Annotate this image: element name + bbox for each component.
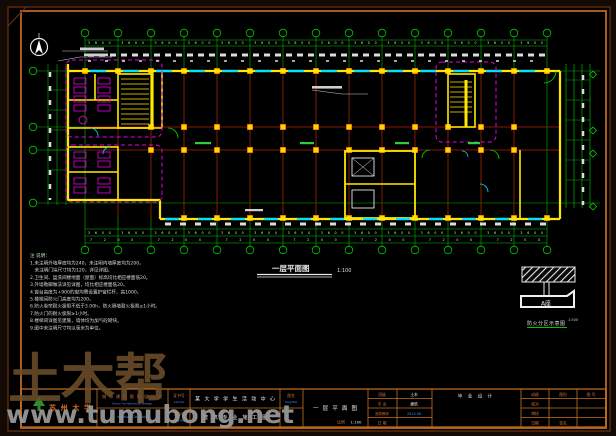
check-label: 校对	[531, 402, 539, 407]
dim-text-bottom1: 3600 3600 3600 3600 3600 3600 3600 3600 …	[88, 231, 543, 235]
note-line: 5.楼梯间防火门高度均为200。	[30, 296, 94, 303]
student-value-3: 2014.06	[407, 412, 421, 416]
detail-caption: 防火分区示意图	[527, 320, 565, 327]
plan-scale: 1:100	[337, 268, 351, 274]
note-line: 未注明门垛尺寸均为120，详见详图。	[30, 267, 112, 274]
note-line: 4.窗台高度为+900的窗均需设置护窗栏杆，高1000。	[30, 288, 141, 295]
category-label: 图别	[559, 392, 567, 397]
note-line: 3.外墙勒脚做法详见详图，均比相应楼面低20。	[30, 281, 128, 288]
note-line: 8.楼梯间详图见建施，墙体均为加气砼砌块。	[30, 317, 122, 324]
student-label-4: 日 期	[378, 421, 387, 426]
student-label-2: 专 业	[378, 402, 387, 407]
cad-sheet: 3600 3600 3600 3600 3600 3600 3600 3600 …	[0, 0, 616, 436]
note-line: 6.防火卷帘耐火极限不低于3.00h，防火隔墙耐火极限≥1小时。	[30, 303, 160, 310]
student-label-3: 指导教师	[375, 411, 389, 416]
dwgno-label: 图 号	[587, 392, 596, 397]
note-line: 7.防火门的耐火极限≥1小时。	[30, 310, 92, 317]
grade-label: 成绩	[531, 392, 539, 397]
cad-drawing: 3600 3600 3600 3600 3600 3600 3600 3600 …	[0, 0, 616, 436]
notes-header: 注 说明：	[30, 252, 50, 259]
dim-text-top: 3600 3600 3600 3600 3600 3600 3600 3600 …	[88, 41, 543, 45]
dwg-scale-value: 1:100	[351, 420, 363, 425]
dwg-scale-label: 比例	[337, 420, 345, 425]
detail-scale: 1:500	[568, 318, 578, 322]
block-a-label: A座	[541, 300, 551, 308]
student-label-1: 班级	[378, 392, 386, 397]
note-line: 1.未注明外墙厚度均为240，未注明内墙厚度均为200。	[30, 260, 144, 267]
review-label: 审核	[531, 411, 539, 416]
note-line: 9.图中未注明尺寸均以毫米为单位。	[30, 324, 103, 331]
design-type: 毕 业 设 计	[458, 393, 494, 400]
plan-title: 一层平面图	[272, 264, 310, 273]
sign-label: 签名	[559, 421, 567, 426]
watermark-url: www.tumubong.net	[6, 400, 294, 429]
note-line: 2.卫生间、盥洗间楼地面（屋面）标高均比相应楼面低20。	[30, 274, 150, 281]
student-value-1: 土木	[410, 392, 418, 397]
dwg-label-cn: 图名	[287, 393, 295, 398]
date-label: 日期	[531, 421, 539, 426]
student-value-2: 建筑	[410, 402, 418, 407]
cert-label-cn: 证书号	[173, 393, 185, 398]
